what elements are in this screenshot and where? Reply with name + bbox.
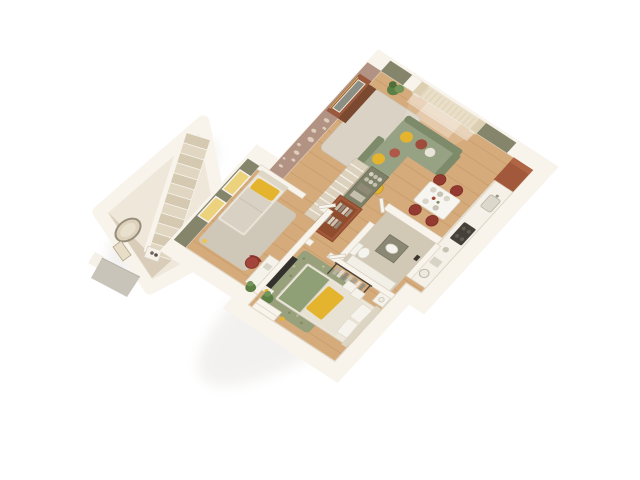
shoe-cabinet-items [150, 251, 154, 255]
shoe-cabinet-items [154, 253, 158, 257]
floorplan-render [0, 0, 640, 480]
floorplan-canvas [0, 0, 640, 480]
